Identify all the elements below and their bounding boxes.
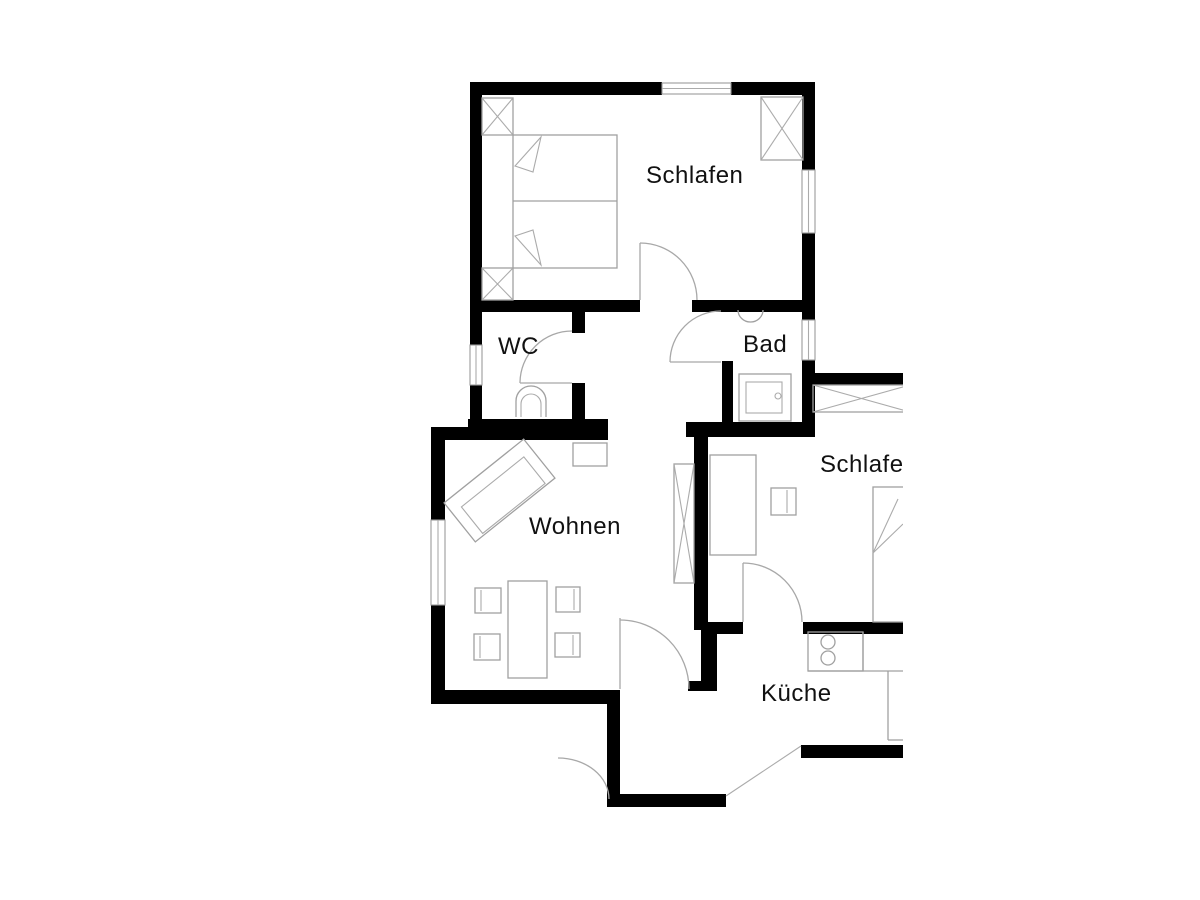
door-swing	[743, 563, 802, 622]
wc-furniture	[516, 386, 546, 417]
stove	[808, 632, 863, 671]
door-swing	[558, 758, 609, 799]
floor-plan-drawing	[0, 0, 1200, 900]
wall	[431, 427, 445, 520]
room-label-bedroom1: Schlafen	[646, 164, 743, 188]
window	[802, 170, 815, 233]
wall	[686, 422, 815, 437]
wall	[801, 745, 905, 758]
nightstand	[482, 98, 513, 135]
wall	[688, 681, 701, 691]
wall	[722, 361, 733, 422]
wall	[470, 300, 640, 312]
wall	[470, 82, 662, 95]
dining-table	[508, 581, 547, 678]
wall	[470, 82, 482, 312]
wall	[470, 385, 482, 422]
wall	[708, 622, 743, 634]
tall-cabinet	[674, 464, 694, 583]
wall	[607, 794, 726, 807]
chair	[556, 587, 580, 612]
double-bed	[513, 135, 617, 268]
nightstand	[482, 268, 513, 300]
wall	[731, 82, 815, 95]
window	[431, 520, 445, 605]
wall	[692, 300, 815, 312]
chair	[555, 633, 580, 657]
walls	[431, 82, 905, 807]
wardrobe	[761, 97, 803, 160]
door-swing	[620, 618, 689, 689]
desk	[710, 455, 756, 555]
window	[802, 320, 815, 360]
floor-plan: Schlafen WC Bad Wohnen Schlafen Küche	[0, 0, 1200, 900]
threshold-line	[726, 746, 801, 796]
wall	[431, 690, 620, 704]
door-swing	[670, 311, 721, 362]
wardrobe	[813, 385, 910, 412]
window	[470, 345, 482, 385]
bedroom1-furniture	[482, 97, 803, 300]
toilet-bowl	[521, 394, 541, 417]
chair	[771, 488, 796, 515]
door-swing	[640, 243, 697, 300]
wall	[803, 373, 905, 385]
bed	[873, 487, 913, 622]
wall	[694, 437, 708, 630]
wall	[607, 703, 620, 804]
wall	[572, 383, 585, 422]
room-label-kitchen: Küche	[761, 682, 832, 706]
room-label-bath: Bad	[743, 333, 787, 357]
wall	[572, 312, 585, 333]
room-label-living: Wohnen	[529, 515, 621, 539]
room-label-bedroom2: Schlafen	[820, 453, 903, 477]
wall	[431, 605, 445, 704]
living-furniture	[444, 439, 694, 678]
window	[662, 83, 731, 94]
side-table	[573, 443, 607, 466]
room-label-wc: WC	[498, 335, 539, 359]
wall	[701, 630, 717, 691]
bath-furniture	[738, 310, 791, 421]
chair	[474, 634, 500, 660]
wall	[431, 427, 608, 440]
wall	[802, 312, 815, 320]
shower	[739, 374, 791, 421]
wall	[802, 95, 815, 170]
wall	[470, 312, 482, 345]
chair	[475, 588, 501, 613]
